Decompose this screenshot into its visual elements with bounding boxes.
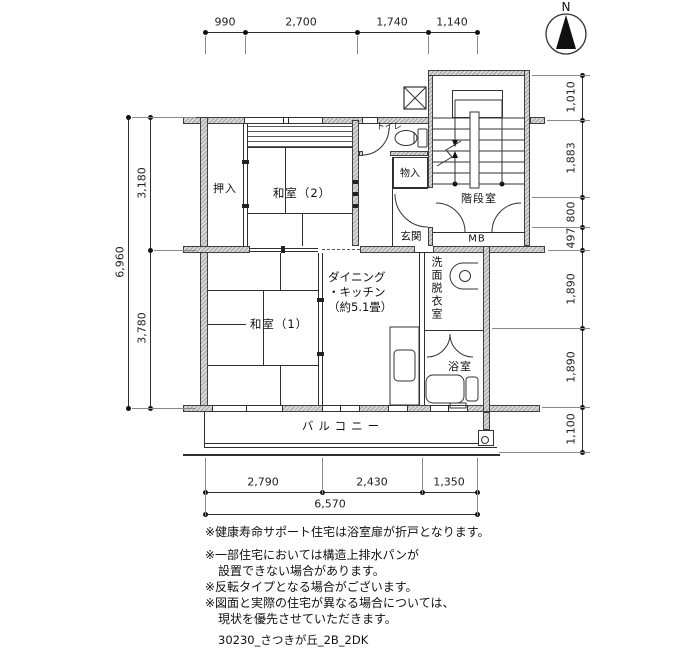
kitchen-sink-icon (390, 327, 419, 405)
toilet-door-arc (362, 128, 389, 155)
bath-folding-door-arc (427, 334, 450, 357)
washbasin-icon (450, 263, 478, 289)
note-line: ※反転タイプとなる場合がございます。 (205, 579, 490, 595)
toilet-icon (395, 129, 427, 147)
stair-door-arc (436, 203, 465, 232)
stair-door-arc (492, 203, 521, 232)
shaft-x-box-icon (404, 87, 426, 109)
plan-code: 30230_さつきが丘_2B_2DK (218, 632, 368, 648)
floor-plan-page: 990 2,700 1,740 1,140 6,960 3,180 3,780 … (0, 0, 700, 650)
entrance-door-arc (395, 194, 428, 227)
stairs-icon (433, 100, 524, 188)
notes-block: ※健康寿命サポート住宅は浴室扉が折戸となります。 ※一部住宅においては構造上排水… (205, 524, 490, 627)
bathtub-icon (426, 375, 478, 408)
note-line: 設置できない場合があります。 (218, 563, 490, 579)
note-line: ※一部住宅においては構造上排水パンが (205, 547, 490, 563)
note-line: ※図面と実際の住宅が異なる場合については、 (205, 595, 490, 611)
note-line: 現状を優先させていただきます。 (218, 611, 490, 627)
drain-icon (482, 437, 489, 444)
note-line: ※健康寿命サポート住宅は浴室扉が折戸となります。 (205, 524, 490, 540)
compass-icon (546, 14, 586, 54)
bath-folding-door-arc (450, 334, 473, 357)
